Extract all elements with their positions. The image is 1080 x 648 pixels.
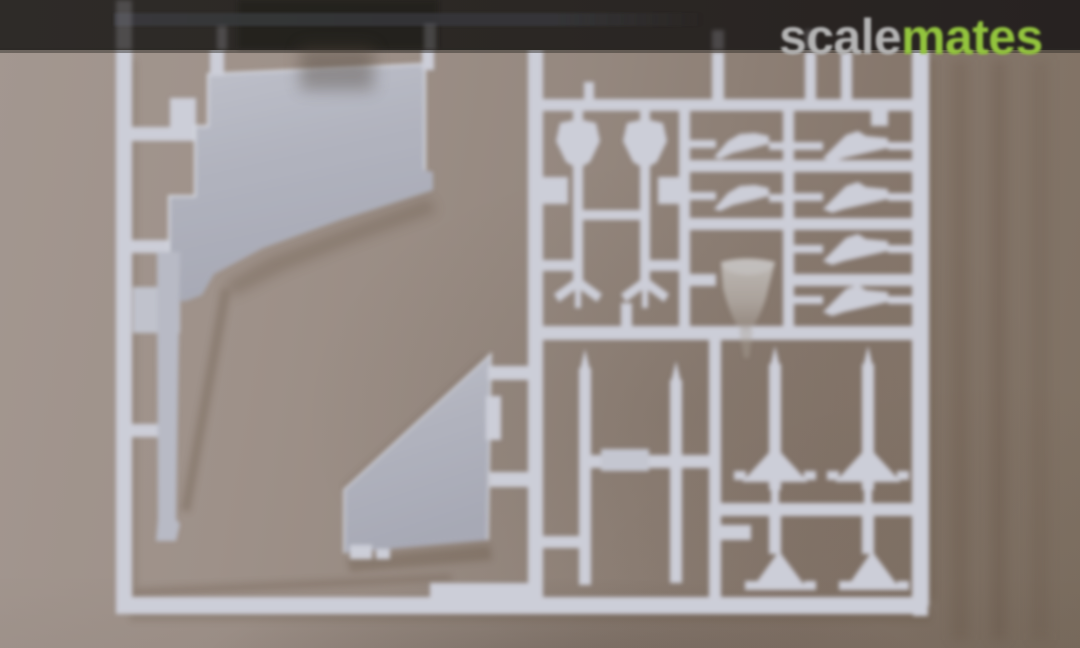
svg-text:scalemates: scalemates <box>779 9 1043 65</box>
